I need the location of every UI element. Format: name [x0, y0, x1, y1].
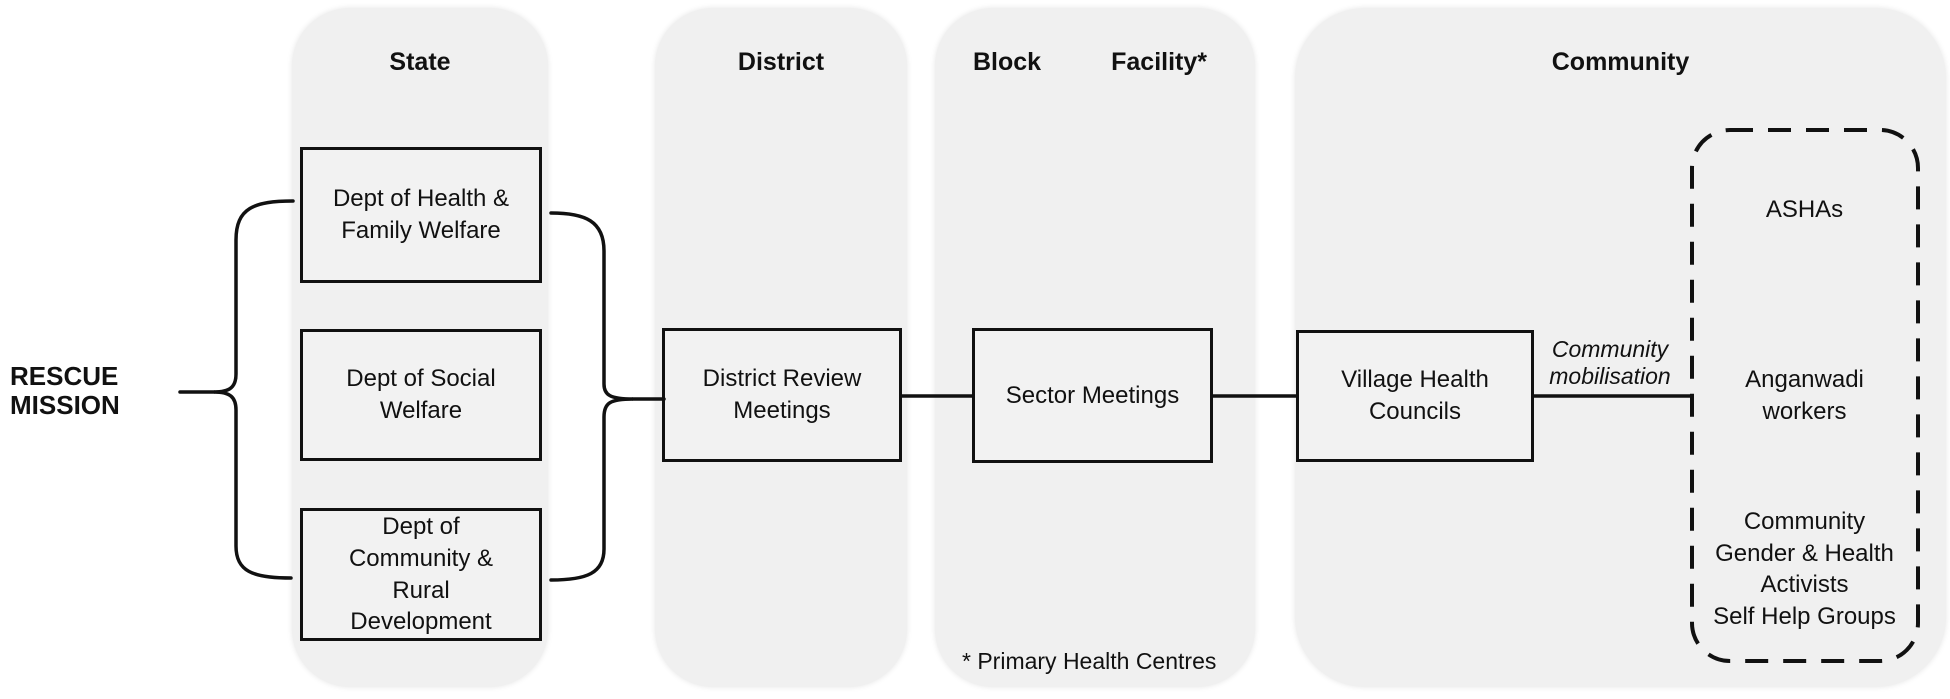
left-brace [214, 201, 293, 578]
dashed-group-item-ashas: ASHAs [1691, 194, 1918, 226]
node-district-review-meetings: District Review Meetings [662, 328, 902, 462]
node-dept-health-family-welfare: Dept of Health & Family Welfare [300, 147, 542, 283]
column-facility-header: Facility* [1111, 48, 1207, 77]
dashed-group-item-anganwadi-workers: Anganwadi workers [1691, 364, 1918, 427]
rescue-mission-label: RESCUE MISSION [10, 362, 140, 420]
diagram-canvas: State District Block Facility* Community… [0, 0, 1950, 699]
community-mobilisation-label: Community mobilisation [1540, 336, 1680, 390]
column-district-header: District [655, 48, 907, 77]
column-block-facility-headers: Block Facility* [935, 48, 1255, 77]
right-brace [551, 213, 633, 580]
node-sector-meetings: Sector Meetings [972, 328, 1213, 463]
node-dept-social-welfare: Dept of Social Welfare [300, 329, 542, 461]
column-community-header: Community [1295, 48, 1946, 77]
dashed-group-item-activists-shg: Community Gender & Health Activists Self… [1691, 506, 1918, 633]
footnote-primary-health-centres: * Primary Health Centres [962, 648, 1216, 675]
column-block-header: Block [973, 48, 1041, 77]
node-village-health-councils: Village Health Councils [1296, 330, 1534, 462]
node-dept-community-rural-development: Dept of Community & Rural Development [300, 508, 542, 641]
column-state-header: State [292, 48, 548, 77]
